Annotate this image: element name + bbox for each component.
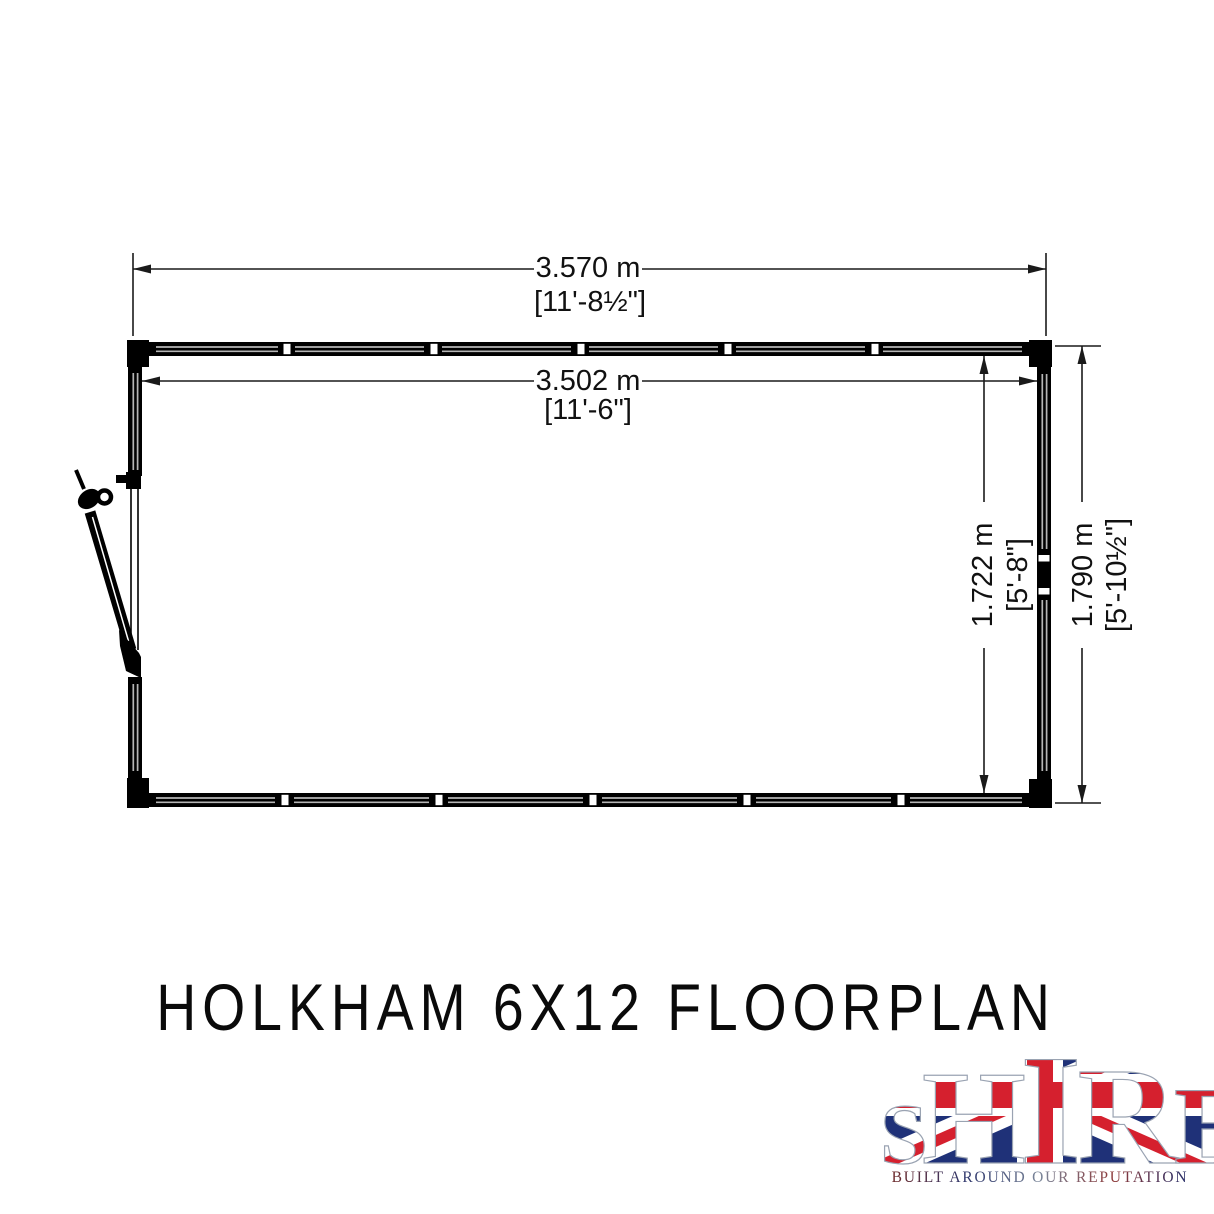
wall-top <box>149 342 1029 356</box>
floorplan-drawing: 3.570 m [11'-8½"] 3.502 m [11'-6"] 1.722… <box>0 0 1214 1214</box>
page-title: HOLKHAM 6X12 FLOORPLAN <box>156 970 1055 1044</box>
dim-inner-width-imperial: [11'-6"] <box>544 394 632 426</box>
logo-tagline: BUILT AROUND OUR REPUTATION <box>892 1169 1189 1186</box>
dim-outer-depth-imperial: [5'-10½"] <box>1101 518 1133 632</box>
door-jamb-stub <box>116 475 127 483</box>
wall-bottom <box>149 793 1029 807</box>
logo-letter-s: S <box>880 1086 928 1182</box>
floorplan-page: 3.570 m [11'-8½"] 3.502 m [11'-6"] 1.722… <box>0 0 1214 1214</box>
wall-left-upper <box>128 367 142 476</box>
wall-right <box>1037 367 1051 779</box>
corner-bottom-right <box>1029 779 1052 808</box>
door-handle-ring-icon <box>98 491 111 504</box>
dim-outer-depth-metric: 1.790 m <box>1067 523 1099 628</box>
dim-outer-width-metric: 3.570 m <box>536 252 641 284</box>
door-leaf-panel-line <box>93 517 129 641</box>
dim-inner-depth-imperial: [5'-8"] <box>1002 538 1034 612</box>
dim-inner-width-metric: 3.502 m <box>536 365 641 397</box>
shire-logo: S H I R E BUILT AROUND OUR REPUTATION <box>880 1023 1214 1198</box>
door-jamb-top <box>126 472 141 489</box>
door-threshold <box>131 489 138 650</box>
door-handle-lever <box>76 470 84 489</box>
dim-outer-width-imperial: [11'-8½"] <box>534 286 646 318</box>
wall-left-lower <box>128 677 142 779</box>
corner-top-right <box>1029 340 1052 367</box>
door <box>74 470 141 678</box>
corner-bottom-left <box>127 778 149 808</box>
corner-top-left <box>127 340 149 367</box>
dim-inner-depth-metric: 1.722 m <box>967 523 999 628</box>
